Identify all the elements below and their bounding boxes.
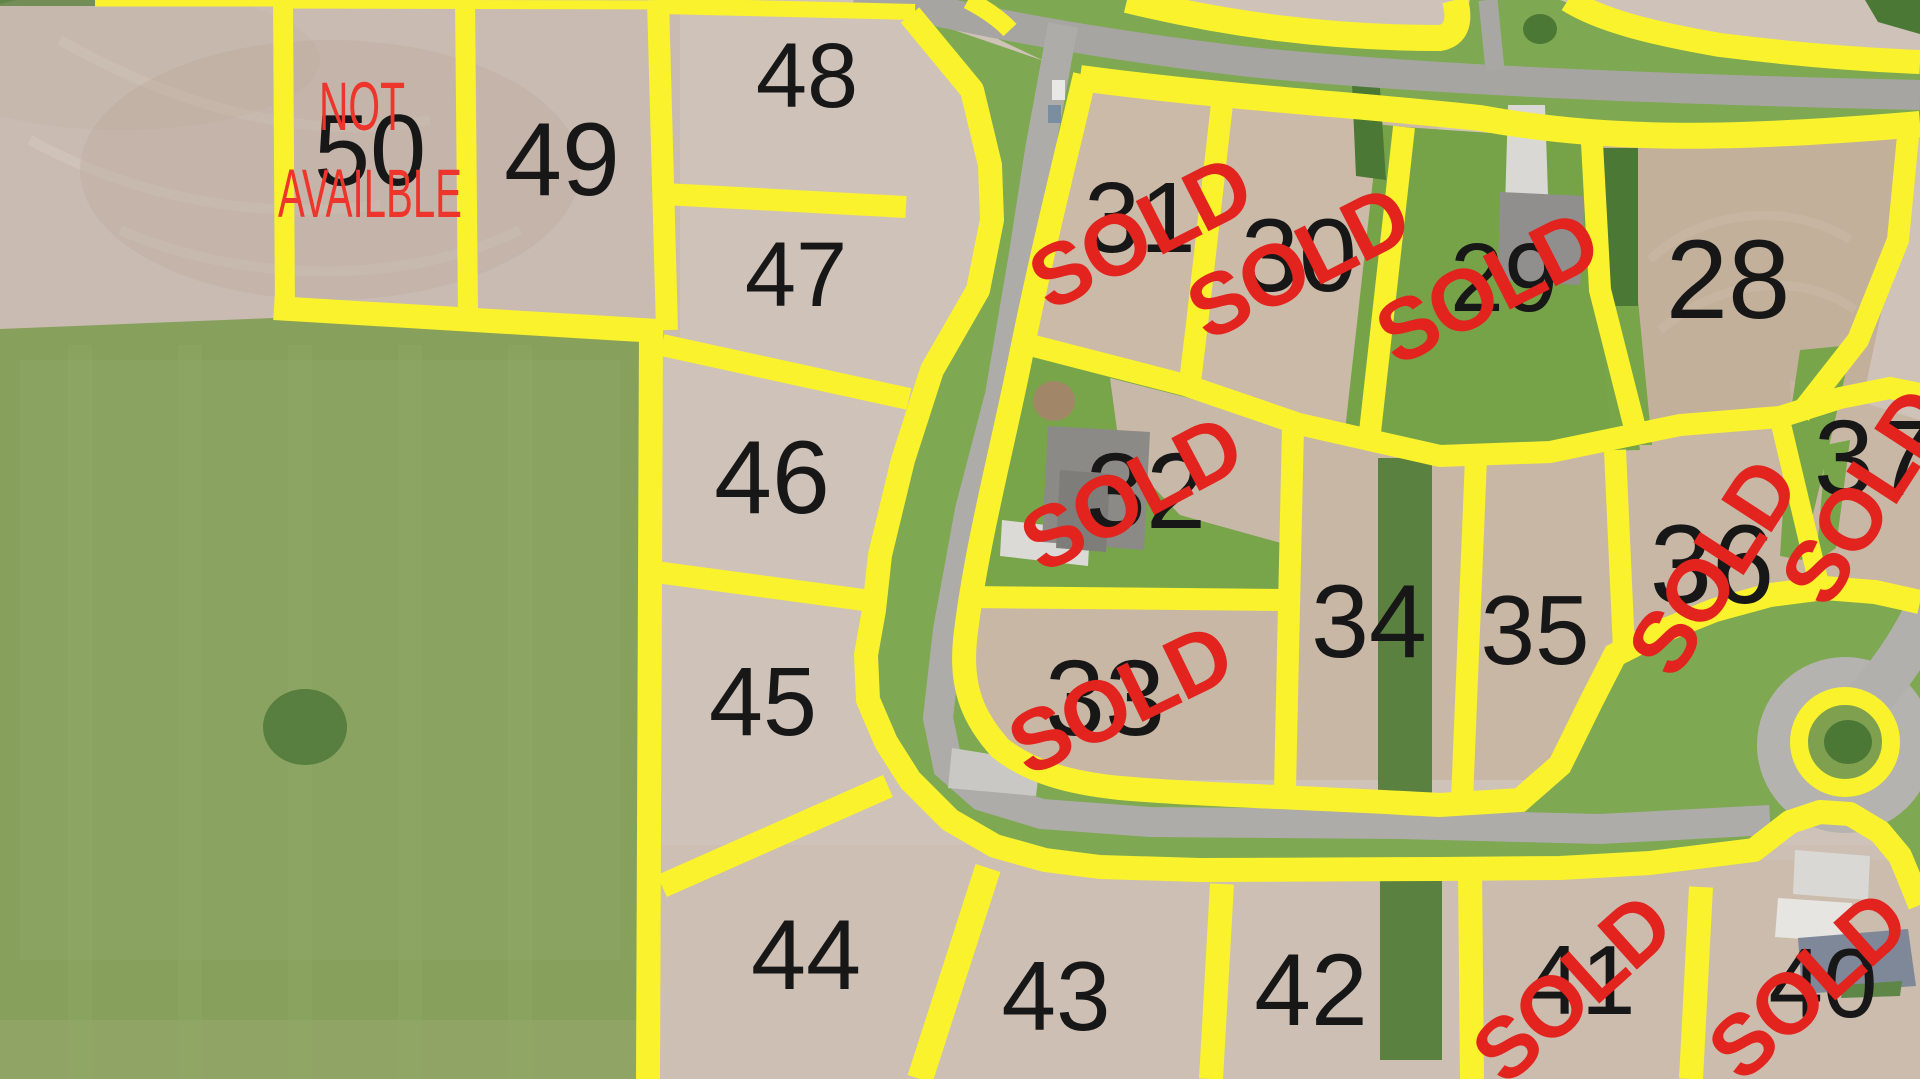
svg-text:35: 35 xyxy=(1480,575,1589,685)
svg-text:48: 48 xyxy=(756,25,858,127)
svg-text:42: 42 xyxy=(1254,933,1367,1047)
svg-text:44: 44 xyxy=(751,899,861,1010)
svg-text:28: 28 xyxy=(1666,217,1791,342)
svg-text:49: 49 xyxy=(504,102,620,218)
svg-text:NOT: NOT xyxy=(319,68,405,145)
svg-text:45: 45 xyxy=(709,647,817,756)
svg-text:46: 46 xyxy=(714,420,830,536)
svg-text:AVAILBLE: AVAILBLE xyxy=(278,155,462,232)
svg-text:47: 47 xyxy=(745,224,847,326)
svg-text:43: 43 xyxy=(1001,941,1110,1051)
svg-text:34: 34 xyxy=(1311,564,1427,680)
